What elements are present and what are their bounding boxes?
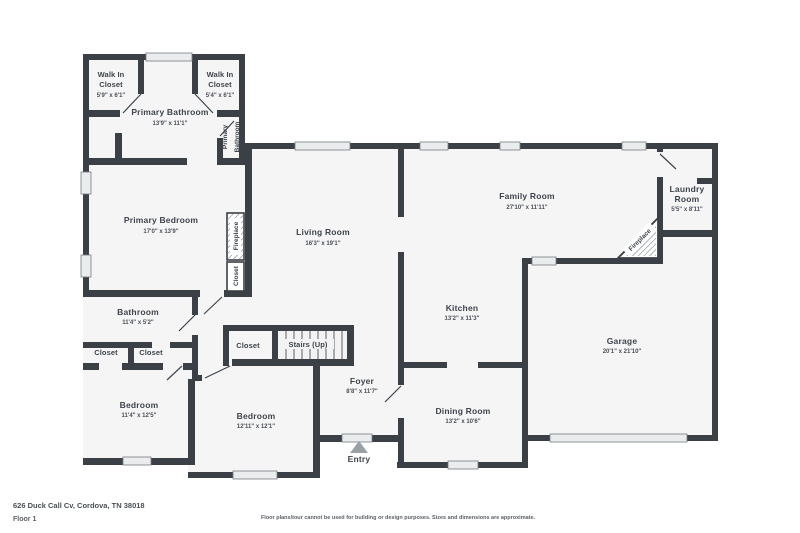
room-dims-living-room: 16'3" x 19'1" bbox=[305, 241, 340, 247]
room-label-bedroom-right: Bedroom bbox=[237, 411, 276, 421]
garage-door bbox=[550, 434, 687, 442]
floor-plan-image: Walk In Closet 5'9" x 6'1" Walk In Close… bbox=[0, 0, 800, 533]
room-label-walk-in-closet-right-2: Closet bbox=[208, 80, 232, 89]
room-label-primary-bathroom-wc: Primary bbox=[222, 125, 229, 150]
fireplace-side-label: Fireplace bbox=[233, 221, 240, 250]
room-label-walk-in-closet-right: Walk In bbox=[207, 70, 234, 79]
room-label-living-room: Living Room bbox=[296, 227, 350, 237]
room-dims-bedroom-left: 11'4" x 12'5" bbox=[122, 413, 157, 419]
room-label-bathroom: Bathroom bbox=[117, 307, 159, 317]
room-label-laundry-room-2: Room bbox=[675, 194, 700, 204]
room-dims-primary-bathroom: 13'9" x 11'1" bbox=[153, 121, 188, 127]
room-label-walk-in-closet-left-2: Closet bbox=[99, 80, 123, 89]
room-dims-garage: 20'1" x 21'10" bbox=[603, 349, 642, 355]
room-label-garage: Garage bbox=[607, 336, 638, 346]
room-dims-dining-room: 13'2" x 10'6" bbox=[445, 419, 480, 425]
room-dims-walk-in-closet-right: 5'4" x 6'1" bbox=[206, 93, 235, 99]
floor-label: Floor 1 bbox=[13, 516, 36, 523]
room-dims-laundry-room: 5'5" x 8'11" bbox=[671, 207, 703, 213]
room-label-bedroom-left: Bedroom bbox=[120, 400, 159, 410]
closet-side-label: Closet bbox=[233, 265, 240, 286]
room-label-primary-bathroom: Primary Bathroom bbox=[131, 107, 209, 117]
room-label-family-room: Family Room bbox=[499, 191, 555, 201]
room-dims-family-room: 27'10" x 11'11" bbox=[506, 205, 547, 211]
hall-closet-label: Closet bbox=[236, 341, 260, 350]
entry-door bbox=[342, 434, 372, 442]
stairs-label: Stairs (Up) bbox=[288, 340, 327, 349]
disclaimer-text: Floor plans/tour cannot be used for buil… bbox=[261, 515, 536, 521]
room-label-primary-bathroom-wc-2: Bathroom bbox=[234, 121, 241, 152]
room-label-foyer: Foyer bbox=[350, 376, 375, 386]
address-text: 626 Duck Call Cv, Cordova, TN 38018 bbox=[13, 501, 145, 510]
room-label-laundry-room: Laundry bbox=[670, 184, 705, 194]
room-label-primary-bedroom: Primary Bedroom bbox=[124, 215, 199, 225]
room-label-dining-room: Dining Room bbox=[435, 406, 490, 416]
room-dims-kitchen: 13'2" x 11'3" bbox=[445, 316, 480, 322]
room-dims-foyer: 8'8" x 11'7" bbox=[346, 389, 378, 395]
room-dims-primary-bedroom: 17'0" x 13'9" bbox=[143, 229, 178, 235]
room-dims-walk-in-closet-left: 5'9" x 6'1" bbox=[97, 93, 126, 99]
closet-b-label: Closet bbox=[139, 348, 163, 357]
room-label-walk-in-closet-left: Walk In bbox=[98, 70, 125, 79]
room-label-kitchen: Kitchen bbox=[446, 303, 479, 313]
room-dims-bedroom-right: 12'11" x 12'1" bbox=[237, 424, 275, 430]
floor-plan-svg: Walk In Closet 5'9" x 6'1" Walk In Close… bbox=[0, 0, 800, 533]
entry-label: Entry bbox=[348, 454, 371, 464]
room-dims-bathroom: 11'4" x 5'2" bbox=[122, 320, 154, 326]
closet-a-label: Closet bbox=[94, 348, 118, 357]
